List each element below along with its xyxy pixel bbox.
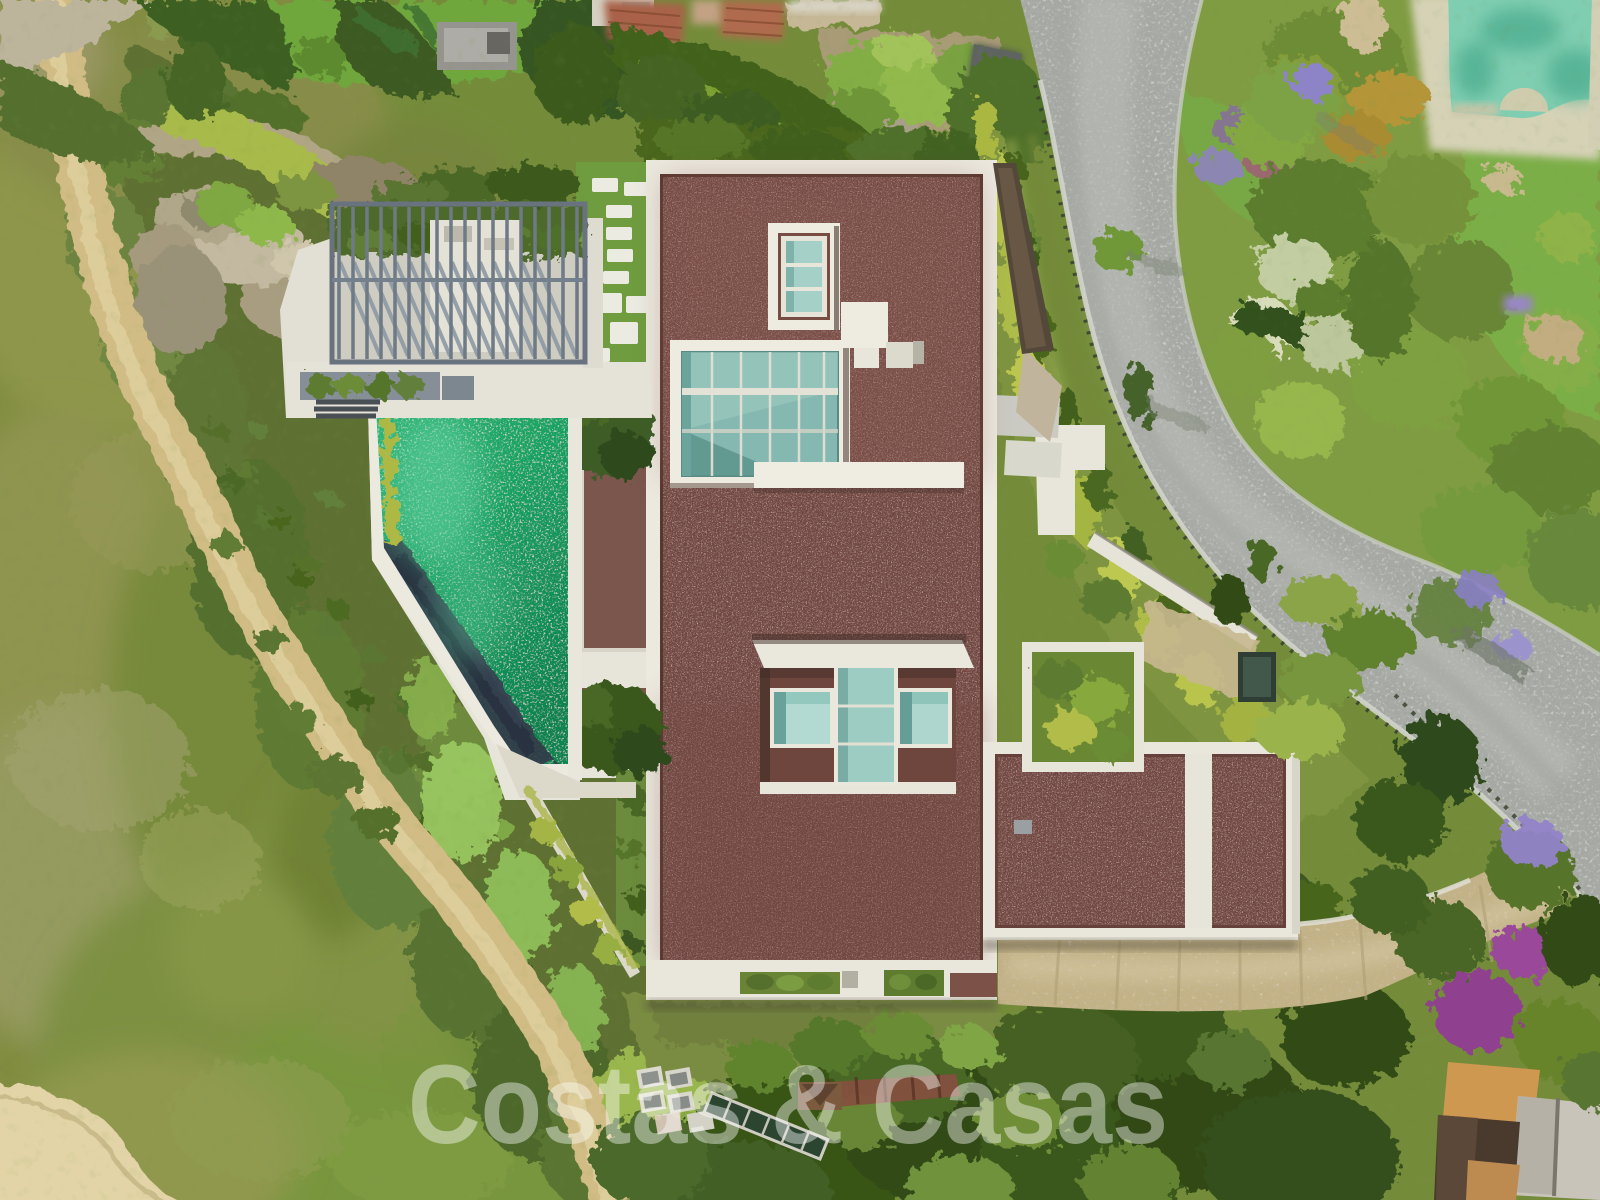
svg-text:Costas & Casas: Costas & Casas	[408, 1042, 1168, 1167]
